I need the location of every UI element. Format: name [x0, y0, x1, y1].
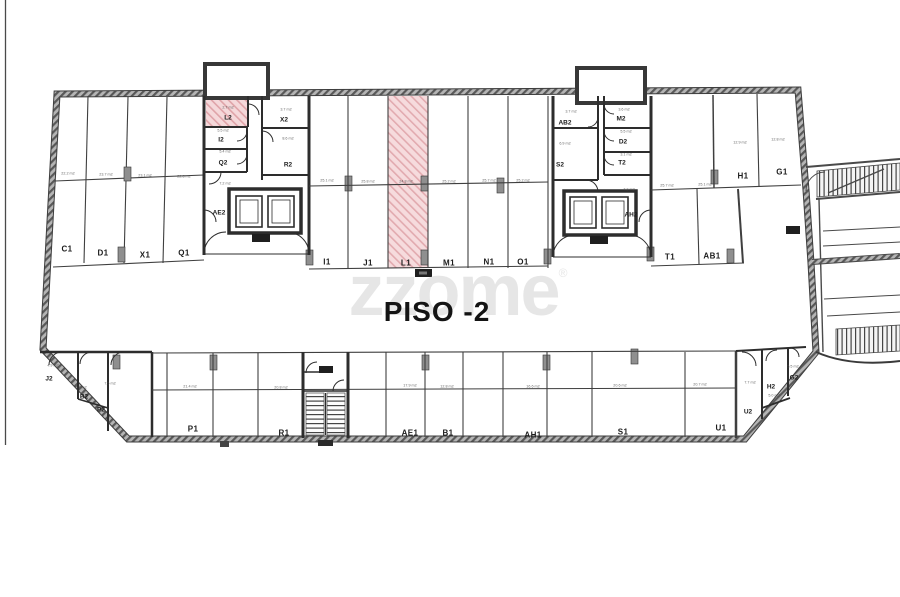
bottom-parking-row — [152, 351, 737, 438]
stairwell — [303, 352, 348, 446]
right-elevator-block — [564, 191, 636, 244]
floor-title: PISO -2 — [384, 296, 491, 328]
stair-tag-badge — [319, 366, 333, 373]
wall-tag-badge — [786, 226, 800, 234]
right-parking-block — [651, 94, 801, 266]
wall-notch — [220, 441, 229, 447]
floor-plan-page: C1D1X1Q1I1J1L1M1N1O1T1AB1H1G1P1R1AE1B1AH… — [0, 0, 900, 597]
left-stair-tower — [205, 64, 268, 98]
stair-tag-badge — [318, 440, 333, 446]
left-elevator-block — [229, 189, 301, 242]
elevator-tag-badge — [590, 236, 608, 244]
registered-mark-icon: ® — [559, 266, 568, 280]
highlighted-room-l2 — [206, 98, 247, 126]
elevator-tag-badge — [252, 234, 270, 242]
right-stair-tower — [577, 68, 645, 103]
upper-left-parking-block — [53, 96, 204, 267]
